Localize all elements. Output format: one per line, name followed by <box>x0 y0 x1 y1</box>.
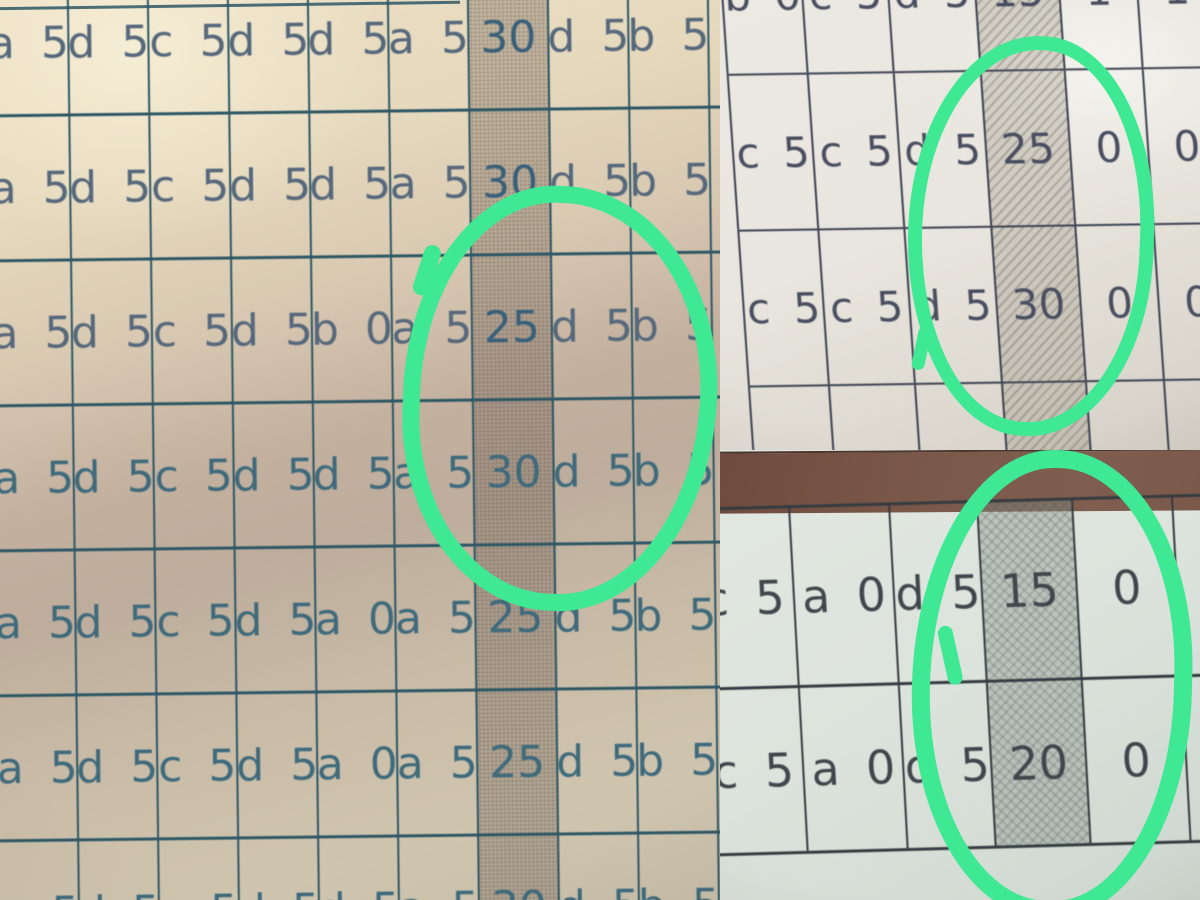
table-cell: c 5 <box>156 549 238 692</box>
table-cell: a 5 <box>0 696 79 839</box>
table-cell: a 5 <box>394 402 476 545</box>
table-row: a 5d 5c 5d 5d 5a 530d 5b 5 <box>0 108 720 263</box>
table-cell: c 5 <box>152 259 234 402</box>
table-cell: c 5 <box>150 114 232 257</box>
table-cell: a 0 <box>316 548 398 691</box>
score-cell: 30 <box>468 0 550 109</box>
score-cell: 15 <box>978 500 1083 679</box>
table-cell: d 5 <box>230 114 312 257</box>
table-cell: c 5 <box>819 229 915 384</box>
score-cell: 25 <box>472 256 554 399</box>
table-cell: d 5 <box>557 690 639 833</box>
table-row: a 5d 5c 5d 5d 5a 530d 5b 5 <box>0 398 720 553</box>
table-cell: c 5 <box>149 0 231 112</box>
table-row: a 5d 5c 5d 5a 0a 525d 5b 5 <box>0 688 720 843</box>
table-cell: a 5 <box>0 406 76 549</box>
score-table: b 0c 5d 51511c 5c 5d 52500c 5c 5d 53000 <box>720 0 1200 450</box>
table-cell: d 5 <box>77 695 159 838</box>
photo-top-right-gradesheet: b 0c 5d 51511c 5c 5d 52500c 5c 5d 53000 <box>720 0 1200 450</box>
score-cell: 30 <box>479 836 561 900</box>
score-cell: 25 <box>477 691 559 834</box>
score-cell: 25 <box>476 546 558 689</box>
score-table: c 5a 0d 5150c 5a 0d 5200 <box>720 490 1200 856</box>
table-cell: b 5 <box>639 834 720 900</box>
table-cell: a 0 <box>800 685 909 851</box>
table-cell: d 5 <box>559 835 641 900</box>
table-cell: 1 <box>1133 0 1200 67</box>
table-cell: d 5 <box>319 837 401 900</box>
table-row: a 5d 5c 5d 5d 5a 530d 5b 5 <box>0 833 720 900</box>
table-row: a 5d 5c 5d 5a 0a 525d 5b 5 <box>0 543 720 698</box>
photo-bottom-right-gradesheet: c 5a 0d 5150c 5a 0d 5200 <box>720 450 1200 900</box>
table-cell: c 5 <box>809 73 905 228</box>
table-cell: d 5 <box>239 838 321 900</box>
table-cell: d 5 <box>236 548 318 691</box>
table-cell: a 5 <box>0 0 70 114</box>
table-cell: c 5 <box>154 404 236 547</box>
table-row: a 5d 5c 5d 5b 0a 525d 5b 5 <box>0 253 720 408</box>
table-cell: a 5 <box>399 837 481 900</box>
table-cell: d 5 <box>79 840 161 900</box>
table-cell: d 5 <box>890 503 988 682</box>
table-cell: c 5 <box>737 230 829 385</box>
table-row: c 5c 5d 52500 <box>727 67 1200 232</box>
table-cell: 0 <box>1144 68 1200 223</box>
table-cell: d 5 <box>232 259 314 402</box>
table-cell: a 5 <box>0 841 81 900</box>
table-cell <box>916 384 1013 450</box>
table-cell: a 5 <box>0 551 77 694</box>
table-row: b 0c 5d 51511 <box>720 0 1200 76</box>
table-cell: d 5 <box>550 110 632 253</box>
table-cell <box>748 386 840 450</box>
table-cell: a 5 <box>397 692 479 835</box>
collage: a 5d 5c 5d 5d 5a 530d 5b 5a 5d 5c 5d 5d … <box>0 0 1200 900</box>
table-cell: d 5 <box>905 228 1002 383</box>
table-cell: b 5 <box>637 689 719 832</box>
table-row: a 5d 5c 5d 5d 5a 530d 5b 5 <box>0 0 720 117</box>
table-cell: d 5 <box>314 403 396 546</box>
table-cell: d 5 <box>556 545 638 688</box>
table-cell: c 5 <box>157 694 239 837</box>
table-cell: d 5 <box>69 0 151 113</box>
table-cell: b 5 <box>634 399 716 542</box>
score-cell: 30 <box>992 226 1086 381</box>
table-cell: a 5 <box>0 261 74 404</box>
table-cell: a 0 <box>790 505 900 685</box>
score-cell: 30 <box>474 401 556 544</box>
table-cell: a 5 <box>392 257 474 400</box>
table-cell: 1 <box>1055 0 1144 69</box>
table-cell: d 5 <box>310 113 392 256</box>
table-cell: b 0 <box>720 0 809 74</box>
table-cell <box>1165 380 1200 450</box>
table-cell: 0 <box>1066 69 1154 224</box>
table-cell: c 5 <box>159 839 241 900</box>
table-cell: d 5 <box>900 683 997 848</box>
table-cell: d 5 <box>74 405 156 548</box>
table-cell: a 0 <box>317 692 399 835</box>
table-cell <box>830 385 926 450</box>
photo-left-gradesheet: a 5d 5c 5d 5d 5a 530d 5b 5a 5d 5c 5d 5d … <box>0 0 720 900</box>
table-cell: c 5 <box>798 0 895 73</box>
score-cell: 25 <box>982 71 1076 226</box>
table-cell: a 5 <box>0 116 72 259</box>
table-cell: d 5 <box>895 72 992 227</box>
table-cell: c 5 <box>727 75 819 230</box>
table-cell: d 5 <box>76 550 158 693</box>
table-row: c 5a 0d 5150 <box>720 493 1200 691</box>
score-cell: 30 <box>470 111 552 254</box>
table-cell <box>1087 381 1175 450</box>
table-cell: d 5 <box>72 260 154 403</box>
table-cell: 0 <box>1076 225 1164 380</box>
table-cell: b 0 <box>312 258 394 401</box>
table-cell: d 5 <box>548 0 630 108</box>
table-row <box>748 379 1200 450</box>
table-cell: a 5 <box>388 0 470 110</box>
table-row: c 5c 5d 53000 <box>737 223 1200 388</box>
table-cell: 0 <box>1073 498 1183 678</box>
table-cell: c 5 <box>720 688 809 854</box>
table-cell: 0 <box>1083 677 1192 843</box>
table-cell: d 5 <box>70 115 152 258</box>
table-cell: a 5 <box>396 547 478 690</box>
table-cell: d 5 <box>552 255 634 398</box>
table-cell: b 5 <box>630 109 712 252</box>
table-cell: d 5 <box>229 0 311 111</box>
table-cell: c 5 <box>720 508 800 688</box>
table-cell: b 5 <box>636 544 718 687</box>
table-row: c 5a 0d 5200 <box>720 673 1200 857</box>
score-cell: 20 <box>988 680 1092 845</box>
table-cell: d 5 <box>884 0 982 71</box>
table-cell: b 5 <box>632 254 714 397</box>
table-cell: a 5 <box>390 112 472 255</box>
score-cell: 15 <box>971 0 1066 70</box>
score-cell <box>1003 382 1097 450</box>
table-cell: d 5 <box>234 403 316 546</box>
score-table: a 5d 5c 5d 5d 5a 530d 5b 5a 5d 5c 5d 5d … <box>0 0 720 900</box>
table-cell: d 5 <box>554 400 636 543</box>
table-cell: b 5 <box>628 0 710 107</box>
table-cell: d 5 <box>309 0 391 111</box>
table-cell: d 5 <box>237 693 319 836</box>
